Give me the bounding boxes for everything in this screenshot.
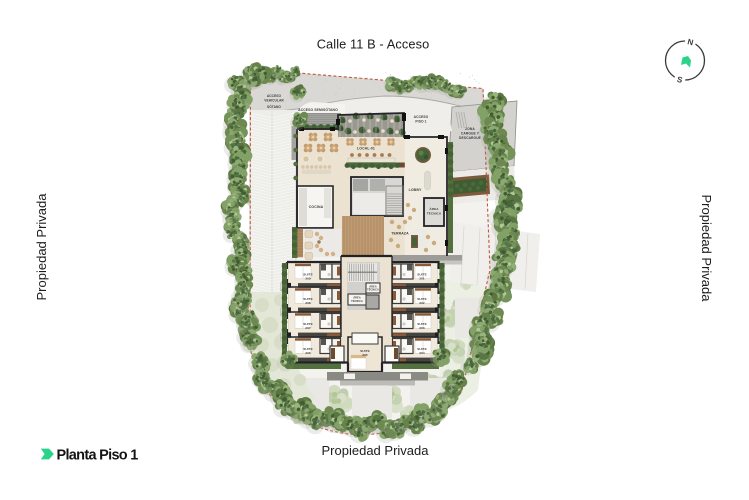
svg-text:301: 301 bbox=[419, 277, 425, 281]
svg-text:307: 307 bbox=[305, 326, 311, 330]
svg-text:LOCAL-01: LOCAL-01 bbox=[357, 147, 375, 151]
svg-text:306: 306 bbox=[305, 351, 311, 355]
svg-text:ACCESO SEMISÓTANO: ACCESO SEMISÓTANO bbox=[298, 107, 338, 112]
svg-text:PISO 1: PISO 1 bbox=[415, 119, 426, 123]
svg-text:Propiedad Privada: Propiedad Privada bbox=[699, 195, 714, 303]
svg-text:304: 304 bbox=[419, 351, 425, 355]
svg-text:VEHICULAR: VEHICULAR bbox=[264, 98, 284, 102]
svg-text:TERRAZA: TERRAZA bbox=[391, 232, 409, 236]
svg-text:ÁREA: ÁREA bbox=[429, 206, 439, 211]
svg-text:Propiedad Privada: Propiedad Privada bbox=[322, 443, 430, 458]
svg-text:305: 305 bbox=[362, 353, 368, 357]
svg-text:308: 308 bbox=[305, 301, 311, 305]
svg-text:TÉCNICA: TÉCNICA bbox=[427, 210, 442, 215]
svg-text:ACCESO: ACCESO bbox=[267, 94, 282, 98]
svg-text:Propiedad Privada: Propiedad Privada bbox=[34, 193, 49, 301]
svg-text:Planta Piso 1: Planta Piso 1 bbox=[57, 448, 139, 464]
svg-text:LOBBY: LOBBY bbox=[409, 188, 422, 192]
svg-text:TÉCNICA: TÉCNICA bbox=[367, 289, 379, 292]
svg-text:TÉCNICA: TÉCNICA bbox=[351, 300, 363, 303]
svg-text:CARGUE Y: CARGUE Y bbox=[461, 131, 480, 135]
svg-text:ACCESO: ACCESO bbox=[414, 115, 429, 119]
svg-text:302: 302 bbox=[419, 301, 425, 305]
svg-text:309: 309 bbox=[305, 277, 311, 281]
svg-text:Calle 11 B - Acceso: Calle 11 B - Acceso bbox=[317, 37, 430, 52]
svg-text:DESCARGUE: DESCARGUE bbox=[459, 136, 482, 140]
svg-text:COCINA: COCINA bbox=[309, 205, 324, 209]
svg-text:303: 303 bbox=[419, 326, 425, 330]
svg-text:SÓTANO: SÓTANO bbox=[267, 104, 281, 109]
